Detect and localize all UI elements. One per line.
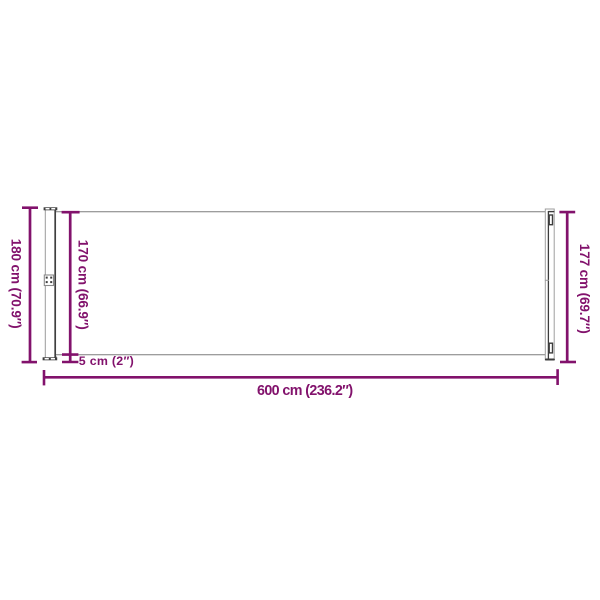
- svg-text:170 cm (66.9″): 170 cm (66.9″): [76, 240, 91, 330]
- svg-text:177 cm (69.7″): 177 cm (69.7″): [577, 244, 592, 334]
- svg-text:600 cm (236.2″): 600 cm (236.2″): [257, 383, 353, 399]
- svg-text:5 cm (2″): 5 cm (2″): [79, 354, 134, 368]
- svg-text:180 cm (70.9″): 180 cm (70.9″): [9, 239, 24, 329]
